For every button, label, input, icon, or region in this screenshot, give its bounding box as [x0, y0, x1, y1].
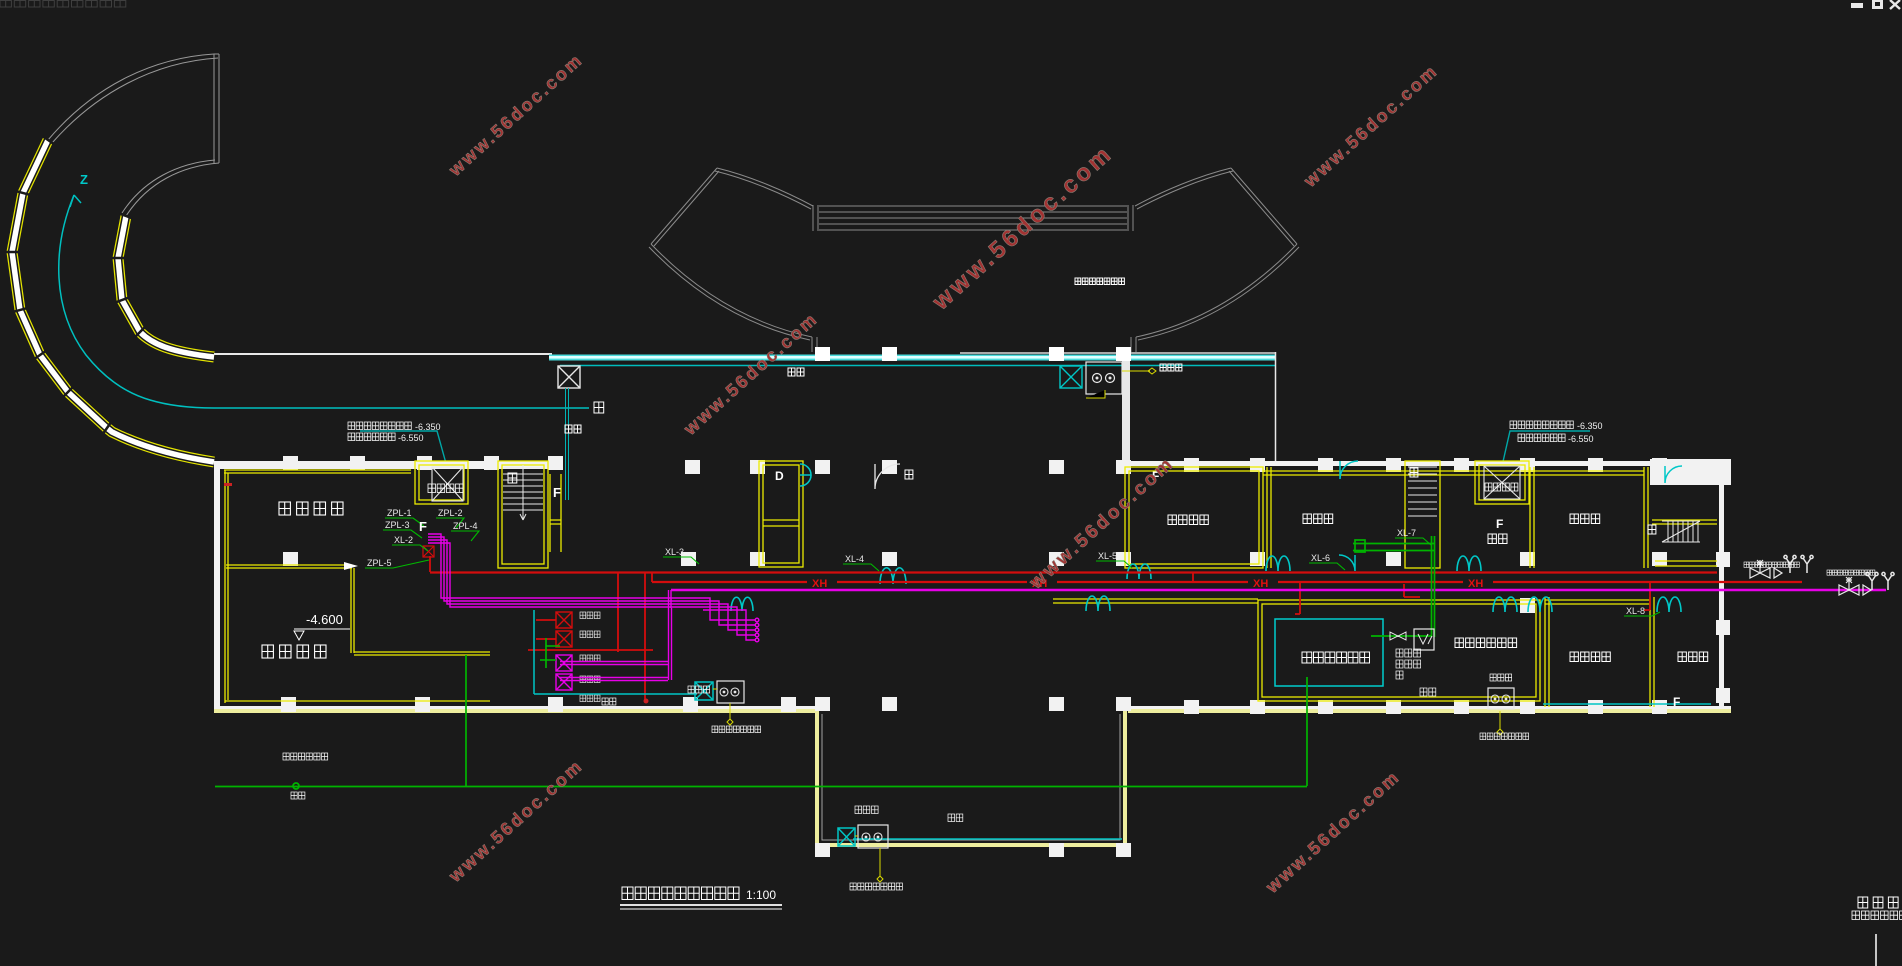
svg-text:XL-8: XL-8: [1626, 606, 1645, 616]
svg-text:XL-7: XL-7: [1397, 528, 1416, 538]
svg-text:F: F: [1496, 517, 1503, 531]
svg-text:-6.550: -6.550: [398, 433, 424, 443]
svg-text:F: F: [419, 519, 427, 534]
svg-text:XL-2: XL-2: [394, 535, 413, 545]
svg-text:Z: Z: [80, 172, 88, 187]
svg-text:ZPL-2: ZPL-2: [438, 508, 463, 518]
svg-text:F: F: [553, 485, 561, 500]
svg-text:XL-6: XL-6: [1311, 553, 1330, 563]
svg-text:ZPL-3: ZPL-3: [385, 520, 410, 530]
svg-text:ZPL-4: ZPL-4: [453, 521, 478, 531]
svg-text:-6.550: -6.550: [1568, 434, 1594, 444]
svg-text:D: D: [775, 469, 784, 483]
svg-text:ZPL-1: ZPL-1: [387, 508, 412, 518]
svg-text:XL-4: XL-4: [845, 554, 864, 564]
svg-text:-4.600: -4.600: [306, 612, 343, 627]
svg-text:F: F: [1673, 695, 1680, 709]
svg-text:XL-3: XL-3: [665, 547, 684, 557]
svg-text:1:100: 1:100: [746, 888, 776, 902]
svg-text:XH: XH: [1253, 578, 1268, 590]
svg-text:ZPL-5: ZPL-5: [367, 558, 392, 568]
svg-text:XH: XH: [1468, 578, 1483, 590]
svg-text:XH: XH: [812, 578, 827, 590]
svg-text:XL-5: XL-5: [1098, 551, 1117, 561]
svg-text:-6.350: -6.350: [1577, 421, 1603, 431]
